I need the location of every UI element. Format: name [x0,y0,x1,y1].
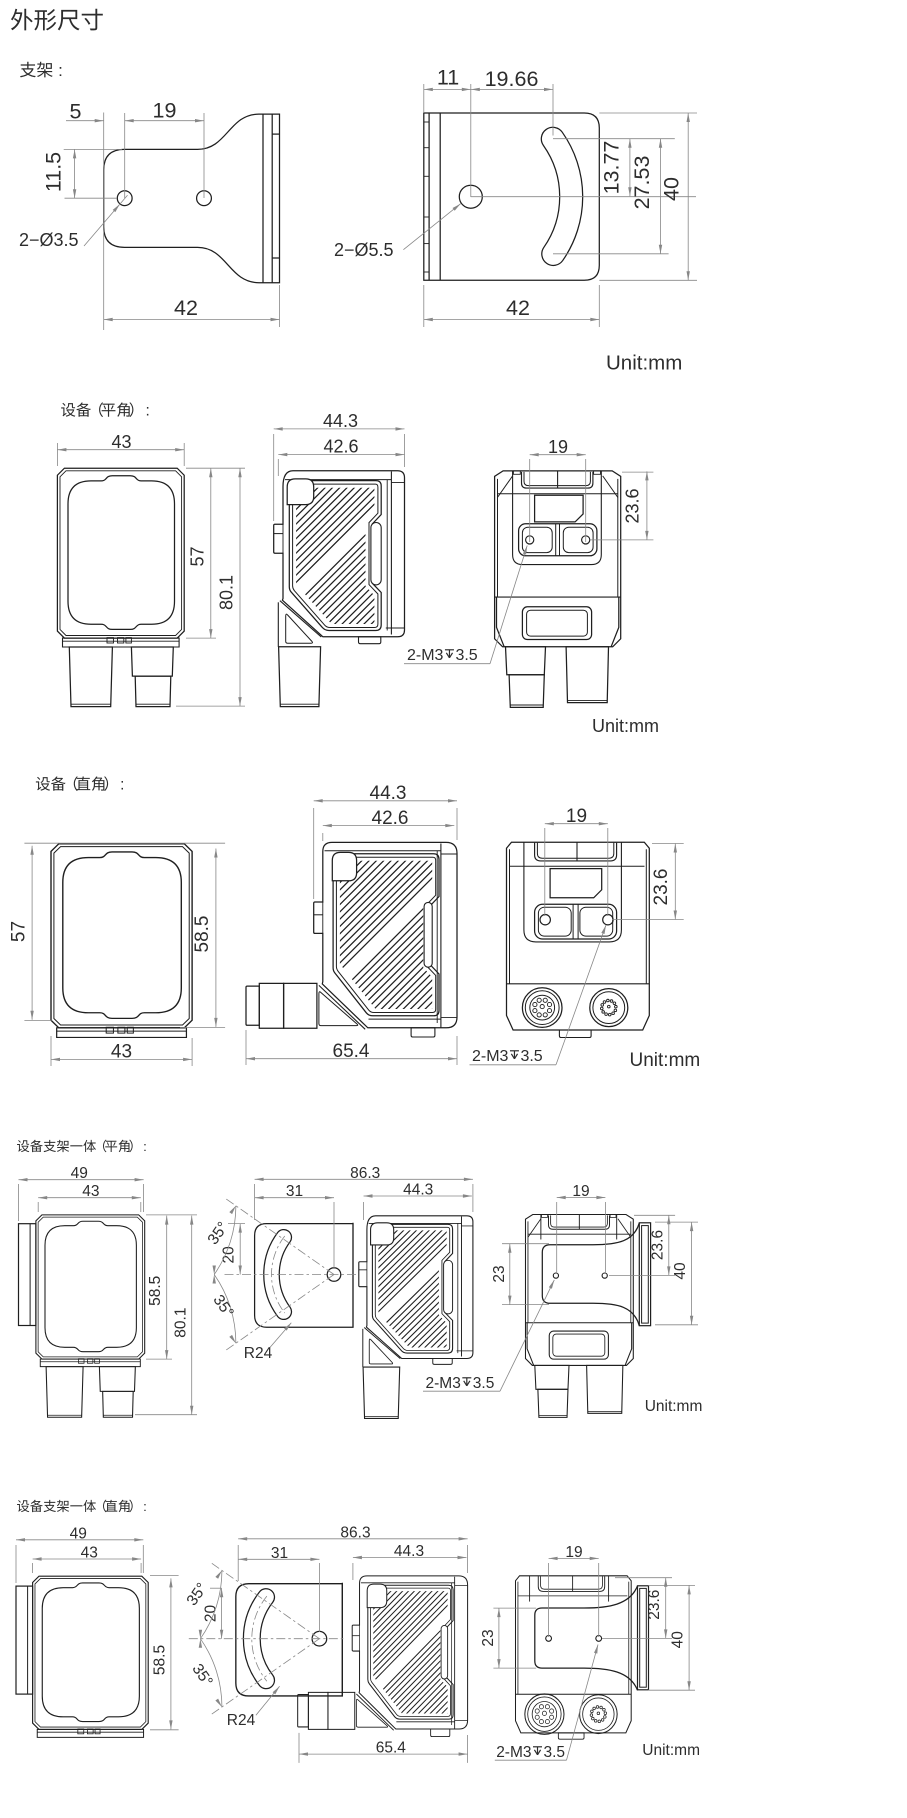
svg-text:Unit:mm: Unit:mm [630,1050,701,1071]
svg-text:3.5: 3.5 [473,1375,495,1392]
svg-text:23: 23 [491,1265,508,1282]
svg-text:43: 43 [111,432,131,452]
svg-text:57: 57 [188,546,208,566]
svg-text:58.5: 58.5 [147,1276,164,1306]
svg-text:58.5: 58.5 [192,916,213,953]
svg-text:Unit:mm: Unit:mm [645,1398,703,1415]
svg-text:2-M3: 2-M3 [472,1048,509,1065]
svg-text::: : [143,1139,147,1154]
svg-text:23: 23 [480,1629,497,1646]
svg-text:19: 19 [572,1183,589,1200]
svg-text:23.6: 23.6 [646,1590,663,1620]
svg-text:19: 19 [153,99,177,123]
svg-text:3.5: 3.5 [455,647,477,664]
svg-text:42.6: 42.6 [323,436,358,456]
svg-text::: : [120,777,124,794]
svg-text::: : [143,1499,147,1514]
svg-text:3.5: 3.5 [520,1048,542,1065]
svg-text:R24: R24 [227,1712,256,1729]
svg-text:57: 57 [9,921,30,942]
svg-text:65.4: 65.4 [333,1041,370,1062]
svg-text:11.5: 11.5 [42,152,66,192]
svg-text:Unit:mm: Unit:mm [642,1742,700,1759]
svg-text:44.3: 44.3 [403,1182,433,1199]
svg-text:44.3: 44.3 [370,783,407,804]
svg-text:2-M3: 2-M3 [426,1375,461,1392]
svg-text:43: 43 [81,1545,98,1562]
svg-text:23.6: 23.6 [623,488,643,523]
svg-text:R24: R24 [244,1345,273,1362]
svg-text::: : [145,403,149,420]
svg-text:44.3: 44.3 [394,1543,424,1560]
svg-text:43: 43 [111,1042,132,1063]
svg-text:80.1: 80.1 [172,1308,189,1338]
svg-text:20: 20 [202,1605,219,1623]
svg-text:19.66: 19.66 [485,67,539,91]
svg-text:2-M3: 2-M3 [496,1744,531,1761]
svg-text:42: 42 [506,296,530,320]
svg-text:40: 40 [670,1631,687,1649]
svg-text:19: 19 [548,437,568,457]
svg-text:49: 49 [71,1165,88,1182]
svg-text:44.3: 44.3 [323,411,358,431]
svg-text:19: 19 [565,1544,582,1561]
svg-text:Unit:mm: Unit:mm [606,352,682,375]
svg-text:27.53: 27.53 [630,156,654,210]
svg-text:43: 43 [82,1183,99,1200]
svg-text:40: 40 [660,177,684,201]
svg-text:3.5: 3.5 [544,1744,566,1761]
svg-text:40: 40 [672,1262,689,1280]
svg-text:31: 31 [286,1183,303,1200]
svg-text:Unit:mm: Unit:mm [592,716,659,736]
svg-text:49: 49 [70,1525,87,1542]
svg-text:2−Ø3.5: 2−Ø3.5 [19,230,79,250]
svg-text:11: 11 [437,66,459,90]
svg-text:31: 31 [271,1545,288,1562]
svg-text:65.4: 65.4 [376,1740,407,1757]
svg-text:86.3: 86.3 [340,1524,370,1541]
svg-text:58.5: 58.5 [151,1645,168,1675]
svg-text:2−Ø5.5: 2−Ø5.5 [334,240,394,260]
svg-text:23.6: 23.6 [649,1230,666,1260]
svg-text:13.77: 13.77 [600,141,624,195]
svg-text:2-M3: 2-M3 [407,647,444,664]
svg-text:5: 5 [70,100,82,124]
svg-text:20: 20 [221,1246,238,1264]
svg-text:80.1: 80.1 [217,575,237,610]
svg-text:42.6: 42.6 [372,808,409,829]
svg-text::: : [58,61,63,80]
svg-text:42: 42 [174,296,198,320]
svg-text:23.6: 23.6 [651,869,672,906]
svg-text:86.3: 86.3 [350,1165,380,1182]
svg-text:19: 19 [566,806,587,827]
